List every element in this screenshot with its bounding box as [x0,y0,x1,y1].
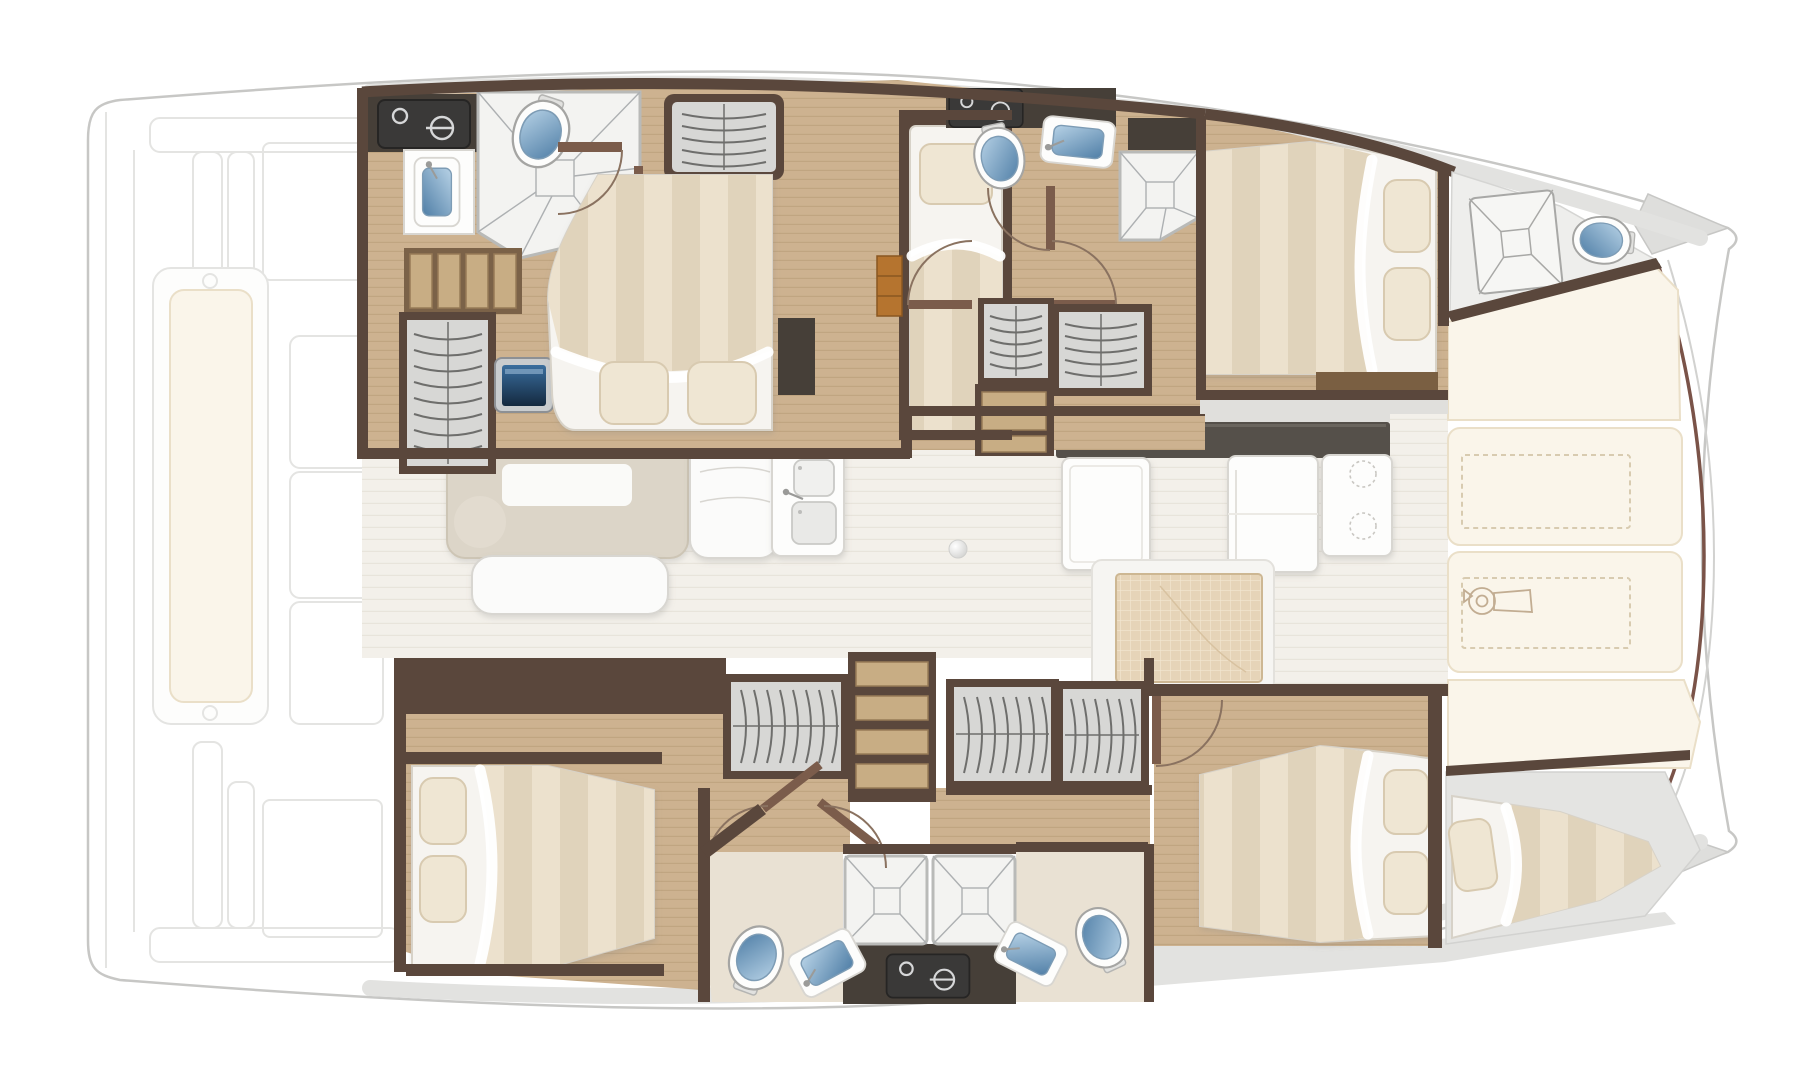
pillow [600,362,668,424]
companionway-steps [848,652,936,802]
cabinet [1128,118,1198,150]
deck-panel [1448,552,1682,672]
double-bed [1200,746,1436,942]
refrigerator [1062,458,1150,570]
double-bed [412,766,654,968]
wardrobe [723,674,849,779]
sofa-bench [472,556,668,614]
pillow [1384,852,1428,914]
pillow [420,778,466,844]
companionway-steps [975,384,1054,456]
wardrobe [664,94,784,180]
catamaran-floor-plan: yacht-floor-plan [0,0,1817,1080]
wardrobe [946,679,1059,789]
wood-floor [930,788,1150,850]
forward-cabin-port [1202,142,1438,392]
shelf-unit [877,256,902,316]
pillow [420,856,466,922]
tv-screen [495,358,553,412]
pillow [1447,817,1498,892]
washbasin-icon [1040,115,1116,168]
washing-machine-icon [887,954,970,997]
double-bed [1202,142,1436,374]
deck-hatch [1469,190,1563,294]
shower [845,856,927,944]
aft-cabin [412,766,654,968]
footboard [1316,372,1438,392]
table-top-pad [502,464,632,506]
pillow [688,362,756,424]
stove [1322,455,1392,556]
double-bed [548,175,772,430]
door-leaf [558,142,622,152]
wardrobe [1055,681,1149,789]
bench-seat-cushion [170,290,252,702]
foredeck: foredeck [1448,266,1700,768]
wardrobe [1051,304,1152,396]
washing-machine-icon [378,100,470,148]
shower [933,856,1015,944]
door-leaf [908,300,972,309]
wardrobe [978,298,1054,384]
washbasin-icon [415,158,460,226]
nightstand [778,318,815,395]
door-leaf [1152,694,1161,764]
floor-mat [1116,574,1262,682]
pillow [1384,268,1430,340]
pillow [1384,770,1428,834]
floor-plan-canvas: yacht-floor-plan [0,0,1817,1080]
pillow [1384,180,1430,252]
door-knob [949,540,967,558]
